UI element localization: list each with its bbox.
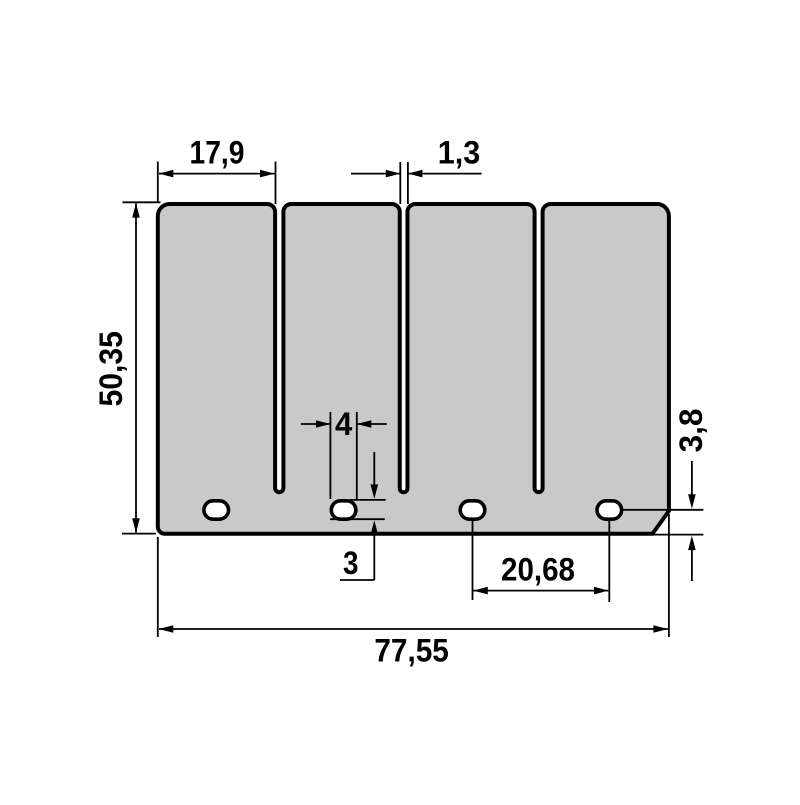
svg-text:3: 3 [343,545,359,581]
svg-text:3,8: 3,8 [673,409,709,453]
svg-text:17,9: 17,9 [190,135,245,171]
svg-text:77,55: 77,55 [374,633,449,669]
svg-text:50,35: 50,35 [93,331,129,407]
svg-text:1,3: 1,3 [438,135,481,171]
svg-text:20,68: 20,68 [501,551,575,587]
svg-text:4: 4 [335,406,352,442]
